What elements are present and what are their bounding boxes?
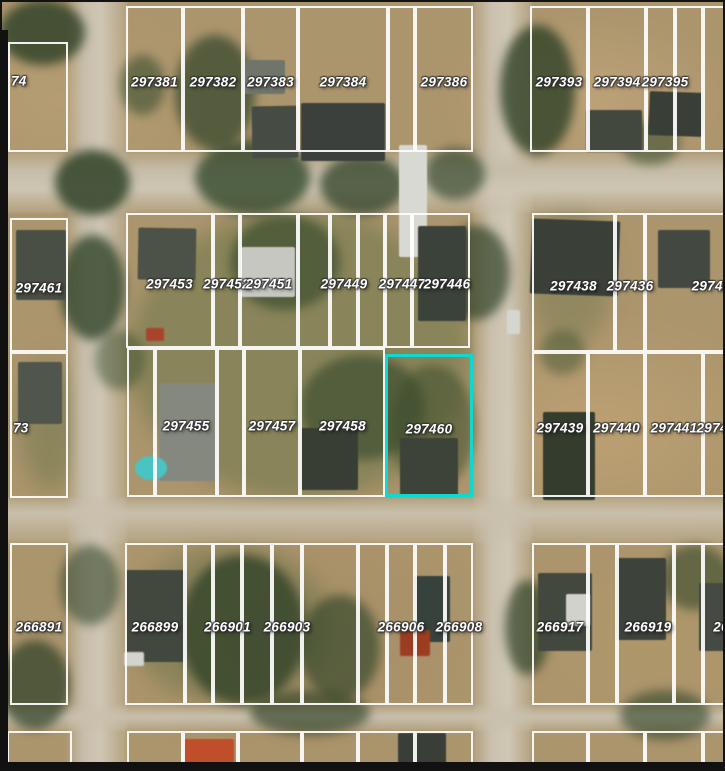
- parcel[interactable]: [388, 6, 415, 152]
- parcel-label-266906: 266906: [378, 620, 425, 635]
- imagery-edge-left: [0, 30, 8, 762]
- parcel-label-297436: 297436: [692, 278, 725, 293]
- parcel-label-297440: 297440: [593, 420, 640, 435]
- parcel-label-297455: 297455: [163, 418, 210, 433]
- parcel[interactable]: [217, 348, 244, 497]
- parcel-label-74: 74: [11, 74, 27, 89]
- aerial-parcel-map: 7429738129738229738329738429738629739329…: [0, 0, 725, 771]
- parcel-label-73: 73: [13, 421, 29, 436]
- parcel-label-297451: 297451: [246, 276, 293, 291]
- parcel[interactable]: [703, 6, 725, 152]
- parcel[interactable]: [588, 543, 617, 705]
- parcel-label-266903: 266903: [264, 620, 311, 635]
- parcel-297460[interactable]: [385, 354, 473, 497]
- parcel-label-297452: 297452: [203, 276, 250, 291]
- parcel-label-266919: 266919: [625, 620, 672, 635]
- parcel-label-297394: 297394: [594, 75, 641, 90]
- parcel-label-297439: 297439: [537, 420, 584, 435]
- parcel-74[interactable]: [8, 42, 68, 152]
- parcel-label-297393: 297393: [536, 75, 583, 90]
- parcel-label-297383: 297383: [247, 75, 294, 90]
- parcel-label-297386: 297386: [421, 75, 468, 90]
- parcel-label-297438: 297438: [550, 278, 597, 293]
- parcel-label-29744: 29744: [696, 420, 725, 435]
- parcel-label-26: 26: [713, 620, 725, 635]
- parcel-label-266891: 266891: [16, 620, 63, 635]
- tree-cluster: [320, 155, 405, 215]
- road-horizontal-middle: [0, 497, 725, 543]
- parcel-label-297453: 297453: [146, 276, 193, 291]
- parcel-label-297382: 297382: [190, 75, 237, 90]
- white-vehicle: [507, 310, 520, 334]
- parcel-label-297395: 297395: [642, 75, 689, 90]
- tree-cluster: [425, 148, 485, 200]
- tree-cluster: [60, 545, 120, 625]
- parcel-label-266901: 266901: [204, 620, 251, 635]
- parcel-label-297436: 297436: [607, 278, 654, 293]
- imagery-edge-bottom: [0, 762, 725, 771]
- parcel-label-297449: 297449: [321, 276, 368, 291]
- parcel-label-297457: 297457: [249, 418, 296, 433]
- parcel-label-297384: 297384: [320, 75, 367, 90]
- tree-cluster: [60, 235, 125, 340]
- parcel-label-297446: 297446: [424, 276, 471, 291]
- parcel-label-297381: 297381: [131, 75, 178, 90]
- parcel[interactable]: [674, 543, 703, 705]
- parcel-label-297447: 297447: [379, 276, 426, 291]
- parcel-label-297441: 297441: [651, 420, 698, 435]
- parcel[interactable]: [127, 348, 155, 497]
- tree-cluster: [55, 150, 130, 215]
- parcel-label-297461: 297461: [16, 281, 63, 296]
- parcel-label-266908: 266908: [436, 620, 483, 635]
- parcel-label-297458: 297458: [319, 418, 366, 433]
- parcel-label-266899: 266899: [132, 620, 179, 635]
- parcel-label-266917: 266917: [537, 620, 584, 635]
